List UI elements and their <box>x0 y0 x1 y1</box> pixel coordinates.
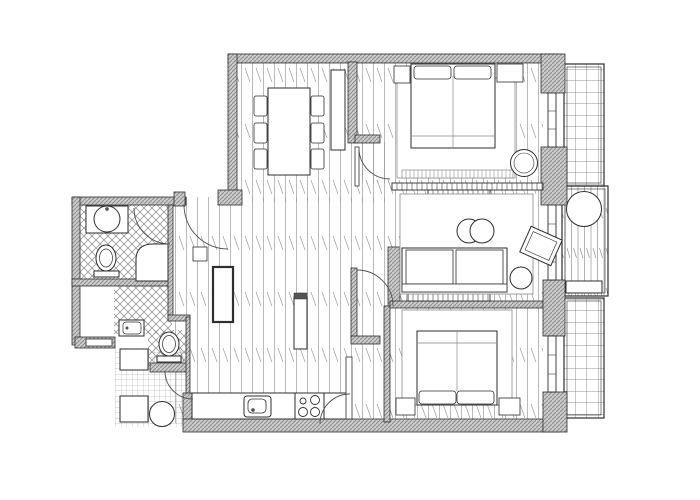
window-band-bedroom1 <box>392 183 543 190</box>
wall-passage-a <box>388 247 400 307</box>
bed-1-pillow <box>414 66 451 79</box>
bed-2-nightstand-right <box>499 398 520 415</box>
toilet-2-tank <box>157 356 181 362</box>
floor-plan-page <box>0 0 700 500</box>
wall-passage-b <box>351 268 357 338</box>
cooktop-burner <box>299 408 308 417</box>
bed-2-pillow <box>419 391 456 404</box>
column-east-2 <box>543 280 565 336</box>
wall-entry-nub <box>174 192 185 206</box>
door-bedroom1-leaf <box>355 147 359 186</box>
kitchen-tall-unit <box>294 297 307 349</box>
cooktop-burner <box>311 408 320 417</box>
floor-balcony-top <box>564 64 604 186</box>
wall-bedroom1-west <box>348 62 357 143</box>
bedroom1-rug-fringe <box>402 170 513 178</box>
wall-bedroom1-stub <box>355 135 380 143</box>
toilet-1-tank <box>94 271 119 277</box>
floor-hall-kitchen <box>172 197 392 423</box>
shower-tray <box>136 244 168 281</box>
coffee-table-2 <box>470 219 494 243</box>
wall-bottom <box>183 419 560 432</box>
bed-1-nightstand-right <box>497 64 523 82</box>
hall-cabinet-small <box>193 247 207 261</box>
storage-door-inset <box>86 339 112 346</box>
floor-storage <box>80 286 114 337</box>
terrace-table <box>567 192 602 227</box>
bath2-fixture-lower <box>120 396 148 422</box>
dining-table <box>268 88 310 175</box>
bed-1-pillow <box>454 66 491 79</box>
wardrobe <box>213 267 233 322</box>
wall-dining-west <box>228 54 237 201</box>
wall-bath1-east <box>168 205 173 317</box>
sofa-cushion <box>456 250 503 284</box>
dining-chair <box>311 96 324 116</box>
bath2-basin <box>150 402 175 427</box>
kitchen-tall-unit-cap <box>294 293 307 299</box>
sofa-back <box>402 284 507 292</box>
bed-2-pillow <box>457 391 494 404</box>
column-southeast <box>543 392 567 432</box>
door-bedroom2-leaf <box>346 357 352 419</box>
bed-1-nightstand-left <box>394 66 410 83</box>
cooktop-burner <box>300 398 306 404</box>
wall-passage-c <box>351 336 380 344</box>
dining-cabinet <box>331 70 345 150</box>
cooktop-burner <box>311 396 320 405</box>
washer-dot <box>126 327 129 330</box>
kitchen-sink-tap <box>251 408 254 411</box>
bath2-fixture-upper <box>120 349 148 370</box>
floor-balcony-bottom <box>564 298 604 418</box>
wall-toilet-nook-south <box>150 363 188 372</box>
column-east-1 <box>541 147 567 205</box>
wall-top <box>228 54 558 63</box>
wall-bedroom2-west <box>384 306 390 422</box>
wall-bath2-east <box>186 317 190 395</box>
dining-chair <box>311 123 324 143</box>
window-bedroom1-east <box>548 93 556 147</box>
terrace-bench <box>566 281 602 293</box>
floor-plan-drawing <box>0 0 700 500</box>
dining-chair <box>254 96 267 116</box>
column-northeast <box>541 54 565 93</box>
side-table <box>510 267 532 289</box>
wall-bedroom2-north <box>390 301 543 308</box>
bed-2-nightstand-left <box>396 398 415 415</box>
bedroom1-stool <box>511 150 538 177</box>
wall-entry-corner <box>218 190 242 205</box>
bath1-tap <box>105 207 108 210</box>
dining-chair <box>254 149 267 169</box>
wall-west-outer <box>72 197 80 345</box>
wall-entry-top <box>72 197 186 205</box>
dining-chair <box>254 123 267 143</box>
window-bedroom2-east <box>548 336 556 392</box>
dining-chair <box>311 149 324 169</box>
sofa-cushion <box>406 250 453 284</box>
